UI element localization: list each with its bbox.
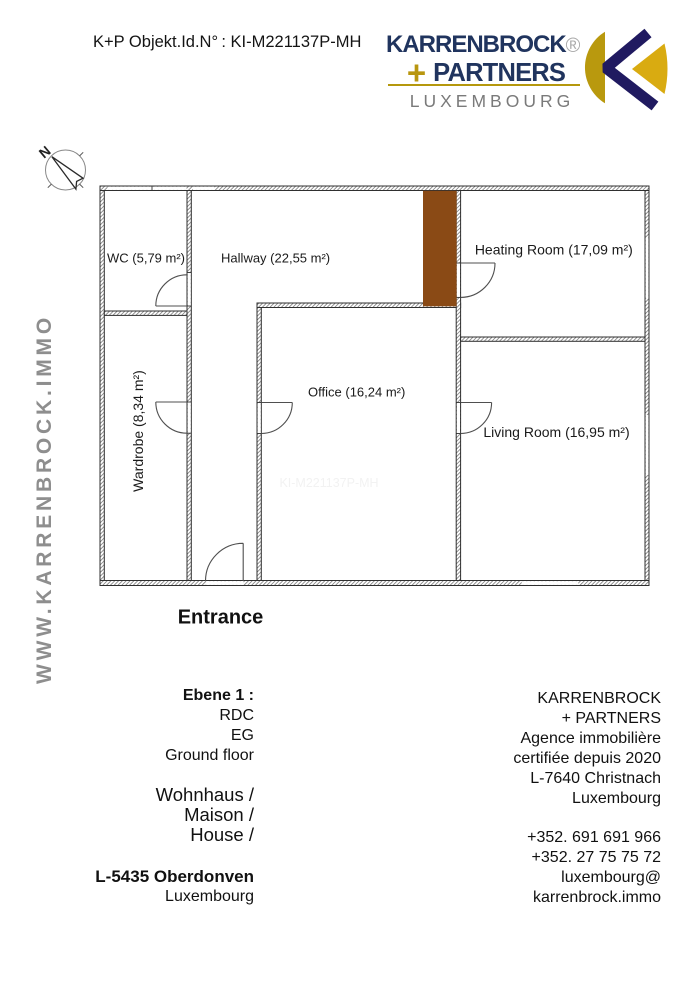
svg-text:Heating Room (17,09 m²): Heating Room (17,09 m²) (475, 242, 633, 258)
svg-text:Wardrobe (8,34 m²): Wardrobe (8,34 m²) (130, 370, 146, 492)
svg-text:KI-M221137P-MH: KI-M221137P-MH (279, 476, 378, 490)
svg-text:Living Room (16,95 m²): Living Room (16,95 m²) (483, 424, 629, 440)
svg-text:N: N (36, 143, 54, 162)
svg-text:Office (16,24 m²): Office (16,24 m²) (308, 385, 405, 400)
svg-text:Entrance: Entrance (178, 607, 264, 629)
svg-text:Hallway (22,55 m²): Hallway (22,55 m²) (221, 250, 330, 265)
svg-text:WC (5,79 m²): WC (5,79 m²) (107, 250, 185, 265)
